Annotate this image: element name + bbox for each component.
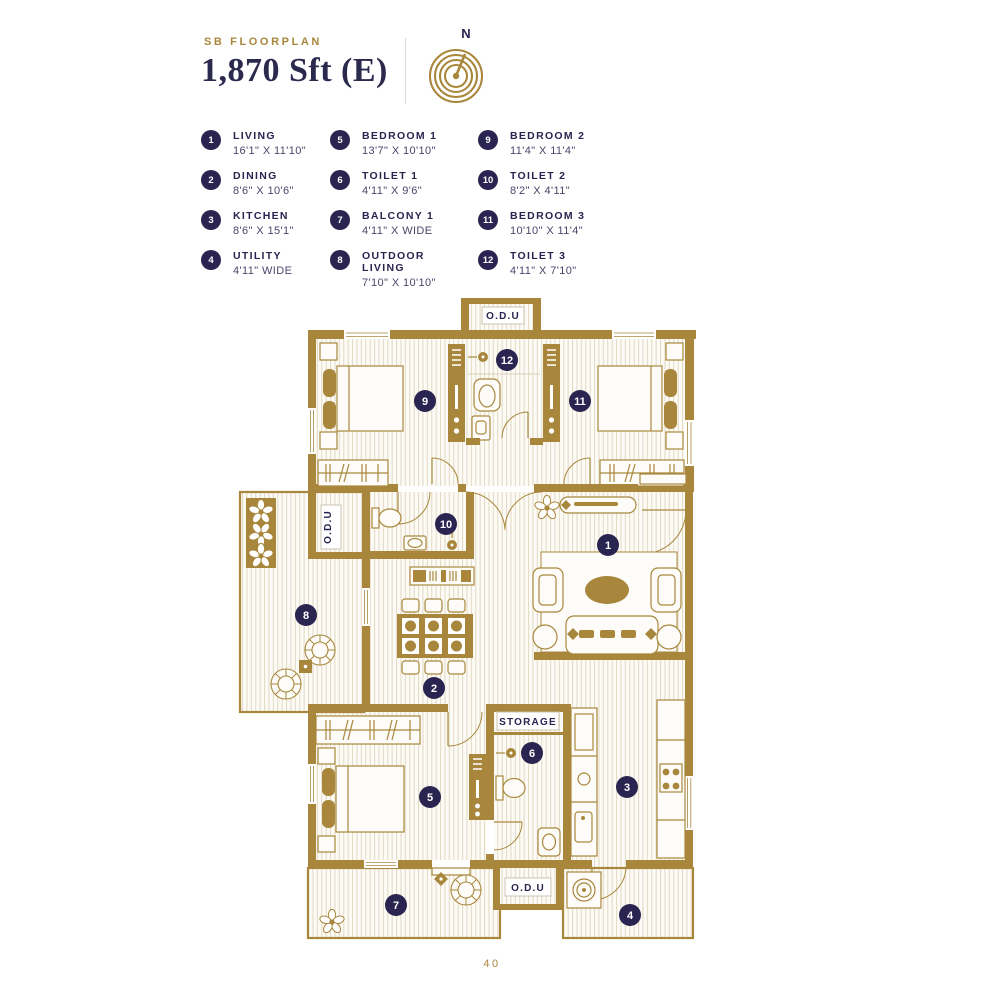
chair-icon xyxy=(448,599,465,612)
svg-text:10: 10 xyxy=(440,519,452,531)
pillow-icon xyxy=(322,800,335,828)
toilet-icon xyxy=(372,508,379,528)
coffee-table-icon xyxy=(585,576,629,604)
side-table-icon xyxy=(533,625,557,649)
svg-text:1: 1 xyxy=(605,540,611,552)
wardrobe-strip-left xyxy=(448,344,465,442)
svg-text:9: 9 xyxy=(422,396,428,408)
floorplan-page: SB FLOORPLAN 1,870 Sft (E) N 1 LIVING 16… xyxy=(0,0,1000,1000)
chair-icon xyxy=(402,661,419,674)
plan-badge-bedroom-1: 5 xyxy=(419,786,441,808)
chair-icon xyxy=(425,599,442,612)
odu-bottom-label: O.D.U xyxy=(511,883,545,894)
window-bottom-bedroom1 xyxy=(364,860,398,868)
odu-middle-closet: O.D.U xyxy=(321,505,341,549)
odu-top-label: O.D.U xyxy=(486,311,520,322)
armchair-icon xyxy=(651,568,681,612)
plan-badge-bedroom-2: 9 xyxy=(414,390,436,412)
plan-badge-toilet-2: 10 xyxy=(435,513,457,535)
page-number: 40 xyxy=(483,958,500,970)
svg-text:6: 6 xyxy=(529,748,535,760)
plan-badge-bedroom-3: 11 xyxy=(569,390,591,412)
pillow-icon xyxy=(323,369,336,397)
armchair-icon xyxy=(533,568,563,612)
odu-middle-label: O.D.U xyxy=(323,510,334,544)
chair-icon xyxy=(425,661,442,674)
pillow-icon xyxy=(664,401,677,429)
entrance-step xyxy=(640,474,686,484)
sideboard-icon xyxy=(410,567,474,585)
tv-console-icon xyxy=(560,497,636,513)
sofa-icon xyxy=(566,616,658,654)
wardrobe-icon xyxy=(318,460,388,486)
plan-badge-dining: 2 xyxy=(423,677,445,699)
chair-icon xyxy=(448,661,465,674)
wardrobe-strip-bedroom1 xyxy=(469,754,486,820)
wardrobe-icon xyxy=(316,716,420,744)
window-left-bedroom1 xyxy=(308,764,316,804)
svg-text:4: 4 xyxy=(627,910,634,922)
pillow-icon xyxy=(664,369,677,397)
nightstand-icon xyxy=(666,343,683,360)
bed-icon xyxy=(598,366,662,431)
plan-badge-toilet-1: 6 xyxy=(521,742,543,764)
kitchen-counter-left xyxy=(571,708,597,856)
floor-plan-drawing: O.D.U xyxy=(0,0,1000,1000)
storage-label: STORAGE xyxy=(499,717,557,728)
nightstand-icon xyxy=(318,748,335,764)
side-table-icon xyxy=(657,625,681,649)
plan-badge-living: 1 xyxy=(597,534,619,556)
plan-badge-balcony-1: 7 xyxy=(385,894,407,916)
bed-icon xyxy=(337,366,403,431)
plan-badge-outdoor-living: 8 xyxy=(295,604,317,626)
toilet-icon xyxy=(496,776,503,800)
wardrobe-strip-right xyxy=(543,344,560,442)
round-chair-icon xyxy=(451,875,481,905)
svg-text:11: 11 xyxy=(574,396,586,408)
svg-text:7: 7 xyxy=(393,900,399,912)
round-chair-icon xyxy=(271,669,301,699)
svg-text:8: 8 xyxy=(303,610,309,622)
window-right-bedroom3 xyxy=(685,420,694,466)
washing-machine-icon xyxy=(567,872,601,908)
balcony-door-opening xyxy=(432,860,470,868)
nightstand-icon xyxy=(320,343,337,360)
window-left-bedroom2 xyxy=(308,408,316,454)
svg-text:12: 12 xyxy=(501,355,513,367)
dining-set-icon xyxy=(397,599,473,674)
svg-text:3: 3 xyxy=(624,782,630,794)
nightstand-icon xyxy=(318,836,335,852)
chair-icon xyxy=(402,599,419,612)
kitchen-counter-right xyxy=(657,700,685,858)
pillow-icon xyxy=(323,401,336,429)
svg-text:2: 2 xyxy=(431,683,437,695)
window-top-right xyxy=(612,330,656,339)
window-top-left xyxy=(344,330,390,339)
nightstand-icon xyxy=(320,432,337,449)
bed-icon xyxy=(336,766,404,832)
plan-badge-kitchen: 3 xyxy=(616,776,638,798)
plan-badge-utility: 4 xyxy=(619,904,641,926)
nightstand-icon xyxy=(666,432,683,449)
pillow-icon xyxy=(322,768,335,796)
utility xyxy=(567,872,601,908)
balcony-step xyxy=(432,868,470,875)
svg-text:5: 5 xyxy=(427,792,433,804)
plan-badge-toilet-3: 12 xyxy=(496,349,518,371)
